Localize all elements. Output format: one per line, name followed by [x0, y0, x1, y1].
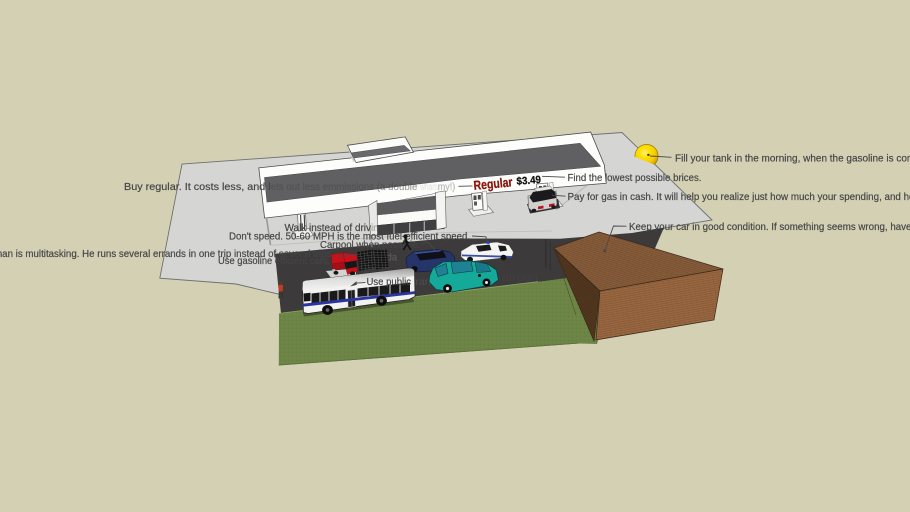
- svg-text:Use gasoline efficient cars.: Use gasoline efficient cars.: [218, 256, 330, 267]
- svg-text:Find the lowest possible brice: Find the lowest possible brices.: [568, 173, 702, 184]
- svg-text:$3.49: $3.49: [516, 174, 541, 188]
- svg-text:ets out less emmissions (a dou: ets out less emmissions (a double: [271, 182, 420, 193]
- svg-text:my!): my!): [438, 182, 456, 193]
- svg-text:Carpool when possible.: Carpool when possible.: [320, 240, 420, 251]
- svg-text:Keep your car in good conditio: Keep your car in good condition. If some…: [629, 222, 910, 233]
- svg-text:wham: wham: [419, 182, 437, 193]
- svg-text:Use public: Use public: [367, 277, 412, 288]
- svg-text:Fill your tank in the morning,: Fill your tank in the morning, when the …: [675, 153, 910, 164]
- svg-text:Buy regular. It costs less, an: Buy regular. It costs less, and l: [124, 182, 271, 193]
- svg-text:Pay for gas in cash. It will h: Pay for gas in cash. It will help you re…: [568, 192, 910, 203]
